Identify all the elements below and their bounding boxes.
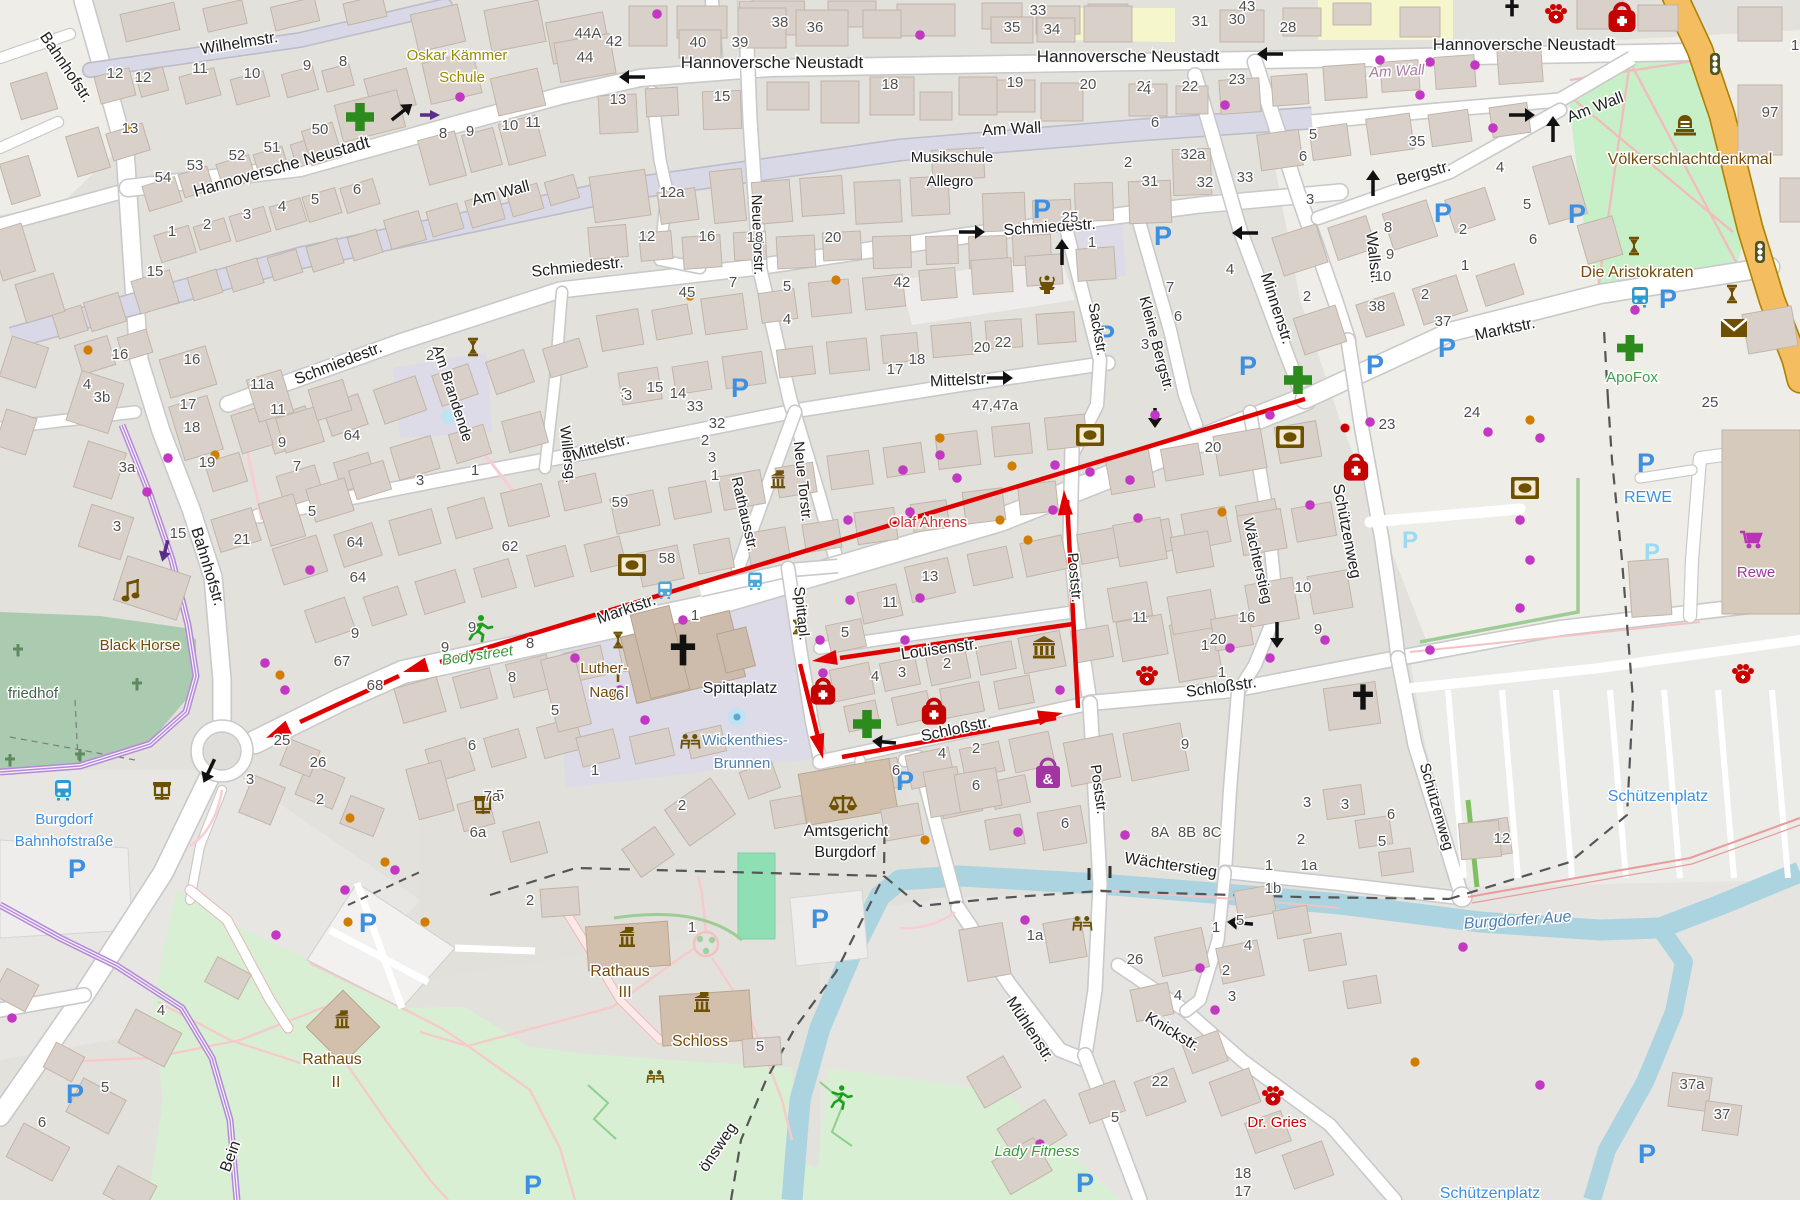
svg-text:1: 1	[1791, 37, 1799, 54]
svg-text:2: 2	[1303, 288, 1311, 305]
svg-text:P: P	[1637, 448, 1655, 478]
svg-text:Dr. Gries: Dr. Gries	[1247, 1114, 1306, 1131]
svg-text:1: 1	[168, 223, 176, 240]
svg-text:20: 20	[1210, 631, 1227, 648]
svg-text:Black Horse: Black Horse	[100, 637, 181, 654]
svg-text:18: 18	[882, 76, 899, 93]
svg-text:11: 11	[1132, 609, 1148, 626]
svg-text:34: 34	[1044, 21, 1061, 38]
svg-text:P: P	[1438, 333, 1456, 363]
svg-text:Hannoversche Neustadt: Hannoversche Neustadt	[681, 53, 864, 72]
svg-text:Wickenthies-: Wickenthies-	[702, 732, 788, 749]
svg-text:2: 2	[701, 432, 709, 449]
svg-text:1: 1	[1265, 857, 1273, 874]
svg-text:9: 9	[466, 123, 474, 140]
svg-text:Luther-: Luther-	[580, 660, 628, 677]
svg-text:40: 40	[690, 34, 707, 51]
svg-text:20: 20	[825, 229, 842, 246]
svg-text:58: 58	[659, 550, 676, 567]
svg-text:35: 35	[1004, 19, 1021, 36]
svg-text:31: 31	[1142, 173, 1159, 190]
svg-text:4: 4	[1143, 81, 1151, 98]
svg-text:5: 5	[101, 1079, 109, 1096]
svg-text:P: P	[811, 904, 829, 934]
svg-text:9: 9	[1314, 621, 1322, 638]
svg-text:12: 12	[107, 65, 124, 82]
svg-text:9: 9	[303, 57, 311, 74]
svg-text:33: 33	[1030, 2, 1047, 19]
svg-text:7: 7	[293, 458, 301, 475]
svg-text:25: 25	[1702, 394, 1719, 411]
svg-text:1: 1	[1201, 637, 1209, 654]
svg-text:2: 2	[1459, 221, 1467, 238]
svg-text:P: P	[731, 373, 749, 403]
svg-text:18: 18	[1235, 1165, 1252, 1182]
svg-text:Hannoversche Neustadt: Hannoversche Neustadt	[1037, 47, 1220, 66]
svg-text:1: 1	[1461, 257, 1469, 274]
svg-text:4: 4	[938, 745, 946, 762]
svg-text:Mittelstr.: Mittelstr.	[930, 370, 990, 390]
svg-text:Am Wall: Am Wall	[1368, 62, 1426, 82]
svg-text:9: 9	[441, 639, 449, 656]
svg-text:1a: 1a	[1301, 857, 1318, 874]
svg-text:P: P	[1434, 198, 1452, 228]
svg-text:2: 2	[678, 797, 686, 814]
svg-text:22: 22	[1152, 1073, 1169, 1090]
svg-text:8: 8	[339, 53, 347, 70]
svg-text:6: 6	[468, 737, 476, 754]
svg-text:Schule: Schule	[439, 69, 485, 86]
svg-text:8: 8	[508, 669, 516, 686]
svg-text:3: 3	[1341, 796, 1349, 813]
svg-text:7: 7	[1166, 279, 1174, 296]
svg-text:97: 97	[1762, 104, 1779, 121]
svg-text:17: 17	[180, 396, 197, 413]
svg-text:18: 18	[184, 419, 201, 436]
svg-text:28: 28	[1280, 19, 1297, 36]
svg-text:Völkerschlachtdenkmal: Völkerschlachtdenkmal	[1608, 151, 1773, 168]
svg-text:Rewe: Rewe	[1737, 564, 1775, 581]
svg-text:33: 33	[687, 398, 704, 415]
svg-text:Lady Fitness: Lady Fitness	[994, 1143, 1080, 1160]
svg-text:50: 50	[312, 121, 329, 138]
svg-text:17: 17	[887, 361, 904, 378]
svg-text:13: 13	[922, 568, 939, 585]
svg-text:3: 3	[243, 206, 251, 223]
svg-text:11a: 11a	[250, 376, 275, 393]
svg-text:36: 36	[807, 19, 824, 36]
svg-text:20: 20	[1080, 76, 1097, 93]
svg-text:6: 6	[1529, 231, 1537, 248]
svg-text:64: 64	[347, 534, 364, 551]
svg-text:6: 6	[616, 687, 624, 704]
svg-text:2: 2	[1124, 154, 1132, 171]
svg-text:5: 5	[311, 191, 319, 208]
svg-text:20: 20	[974, 339, 991, 356]
svg-text:Olaf Ahrens: Olaf Ahrens	[889, 514, 967, 531]
svg-text:P: P	[1644, 539, 1660, 566]
svg-text:&: &	[1043, 771, 1054, 788]
svg-text:19: 19	[1007, 74, 1024, 91]
svg-text:2: 2	[526, 892, 534, 909]
svg-text:10: 10	[1375, 268, 1392, 285]
svg-text:ApoFox: ApoFox	[1606, 369, 1658, 386]
svg-text:15: 15	[714, 88, 731, 105]
svg-text:44: 44	[577, 49, 594, 66]
svg-text:42: 42	[606, 33, 623, 50]
svg-text:6: 6	[1061, 815, 1069, 832]
svg-text:52: 52	[229, 147, 246, 164]
svg-text:67: 67	[334, 653, 351, 670]
svg-text:19: 19	[199, 454, 216, 471]
svg-text:16: 16	[184, 351, 201, 368]
svg-text:8: 8	[439, 125, 447, 142]
svg-text:35: 35	[1409, 133, 1426, 150]
svg-text:Burgdorf: Burgdorf	[814, 844, 876, 861]
svg-text:1: 1	[1218, 664, 1226, 681]
svg-text:10: 10	[244, 65, 261, 82]
svg-text:8C: 8C	[1202, 824, 1221, 841]
svg-text:6: 6	[1151, 114, 1159, 131]
svg-text:15: 15	[147, 263, 164, 280]
svg-text:6: 6	[1387, 806, 1395, 823]
svg-text:P: P	[524, 1170, 542, 1200]
svg-text:11: 11	[882, 594, 898, 611]
svg-text:62: 62	[502, 538, 519, 555]
svg-text:25: 25	[274, 732, 291, 749]
svg-text:1: 1	[691, 607, 699, 624]
svg-text:P: P	[1239, 351, 1257, 381]
svg-text:4: 4	[278, 198, 286, 215]
svg-text:38: 38	[1369, 298, 1386, 315]
svg-text:2: 2	[1222, 962, 1230, 979]
svg-text:3a: 3a	[119, 459, 136, 476]
svg-text:37: 37	[1435, 313, 1452, 330]
svg-text:5: 5	[551, 702, 559, 719]
svg-text:5: 5	[756, 1038, 764, 1055]
svg-text:Burgdorf: Burgdorf	[35, 811, 93, 828]
svg-text:1: 1	[1088, 234, 1096, 251]
svg-text:friedhof: friedhof	[8, 685, 59, 702]
svg-text:4: 4	[783, 311, 791, 328]
svg-text:5: 5	[308, 503, 316, 520]
svg-text:8: 8	[526, 635, 534, 652]
svg-text:43: 43	[1239, 0, 1256, 15]
svg-text:Am Wall: Am Wall	[982, 119, 1042, 139]
svg-text:8A: 8A	[1151, 824, 1169, 841]
svg-text:26: 26	[310, 754, 327, 771]
svg-text:9: 9	[278, 434, 286, 451]
svg-text:3: 3	[113, 518, 121, 535]
svg-text:45: 45	[679, 284, 696, 301]
svg-text:59: 59	[612, 494, 629, 511]
svg-text:P: P	[68, 854, 86, 884]
svg-text:64: 64	[350, 569, 367, 586]
svg-text:3: 3	[1141, 336, 1149, 353]
svg-text:III: III	[618, 984, 631, 1001]
svg-text:2: 2	[316, 791, 324, 808]
svg-text:1b: 1b	[1265, 880, 1282, 897]
svg-text:54: 54	[155, 169, 172, 186]
svg-text:3b: 3b	[94, 389, 111, 406]
svg-text:4: 4	[157, 1002, 165, 1019]
svg-text:39: 39	[732, 34, 749, 51]
svg-text:Rathaus: Rathaus	[302, 1051, 362, 1068]
svg-text:10: 10	[1295, 579, 1312, 596]
svg-text:9: 9	[351, 625, 359, 642]
svg-text:2: 2	[1297, 831, 1305, 848]
svg-text:33: 33	[1237, 169, 1254, 186]
svg-text:P: P	[66, 1079, 84, 1109]
svg-text:1: 1	[471, 462, 479, 479]
svg-text:P: P	[1366, 350, 1384, 380]
svg-text:53: 53	[187, 157, 204, 174]
svg-text:II: II	[332, 1074, 341, 1091]
svg-text:6: 6	[1299, 148, 1307, 165]
svg-text:23: 23	[1229, 71, 1246, 88]
svg-text:3: 3	[898, 664, 906, 681]
svg-text:3: 3	[708, 449, 716, 466]
svg-text:5: 5	[1111, 1109, 1119, 1126]
svg-text:17: 17	[1235, 1183, 1252, 1200]
svg-text:6: 6	[38, 1114, 46, 1131]
svg-text:18: 18	[747, 229, 764, 246]
svg-text:4: 4	[1496, 159, 1504, 176]
svg-text:38: 38	[772, 14, 789, 31]
svg-text:5: 5	[1523, 196, 1531, 213]
svg-text:31: 31	[1192, 13, 1209, 30]
svg-text:2: 2	[972, 740, 980, 757]
svg-text:REWE: REWE	[1624, 489, 1672, 506]
svg-text:5: 5	[841, 624, 849, 641]
svg-text:Schloss: Schloss	[672, 1033, 728, 1050]
svg-text:Bahnhofstraße: Bahnhofstraße	[15, 833, 113, 850]
svg-text:Amtsgericht: Amtsgericht	[804, 823, 889, 840]
svg-text:6a: 6a	[470, 824, 487, 841]
svg-text:1: 1	[591, 762, 599, 779]
svg-text:26: 26	[1127, 951, 1144, 968]
svg-text:2: 2	[1421, 286, 1429, 303]
svg-text:8B: 8B	[1178, 824, 1196, 841]
svg-text:P: P	[1638, 1139, 1656, 1169]
svg-text:1a: 1a	[1027, 927, 1044, 944]
svg-text:Hannoversche Neustadt: Hannoversche Neustadt	[1433, 35, 1616, 54]
svg-text:8: 8	[1384, 219, 1392, 236]
svg-text:Schützenplatz: Schützenplatz	[1608, 788, 1709, 805]
svg-text:P: P	[1659, 284, 1677, 314]
svg-text:Musikschule: Musikschule	[911, 149, 994, 166]
svg-text:4: 4	[1244, 937, 1252, 954]
svg-text:3: 3	[416, 472, 424, 489]
svg-text:18: 18	[909, 351, 926, 368]
svg-text:12: 12	[135, 69, 152, 86]
svg-text:13: 13	[122, 120, 139, 137]
svg-text:9: 9	[468, 619, 476, 636]
svg-text:7: 7	[729, 274, 737, 291]
svg-text:22: 22	[995, 334, 1012, 351]
svg-text:6: 6	[353, 181, 361, 198]
svg-text:23: 23	[1379, 416, 1396, 433]
svg-text:68: 68	[367, 677, 384, 694]
svg-text:4: 4	[83, 376, 91, 393]
svg-text:14: 14	[670, 385, 687, 402]
svg-text:37a: 37a	[1679, 1076, 1705, 1093]
svg-text:P: P	[359, 908, 377, 938]
svg-text:11: 11	[525, 114, 541, 131]
svg-text:2: 2	[203, 216, 211, 233]
svg-text:3: 3	[246, 771, 254, 788]
svg-text:11: 11	[192, 60, 208, 77]
svg-text:5: 5	[1309, 126, 1317, 143]
svg-text:32a: 32a	[1180, 146, 1206, 163]
svg-text:5: 5	[1236, 912, 1244, 929]
svg-text:Die Aristokraten: Die Aristokraten	[1581, 264, 1694, 281]
svg-text:10: 10	[502, 117, 519, 134]
svg-text:15: 15	[647, 379, 664, 396]
svg-text:1: 1	[688, 919, 696, 936]
svg-text:4: 4	[871, 668, 879, 685]
svg-text:Rathaus: Rathaus	[590, 963, 650, 980]
svg-text:P: P	[1076, 1168, 1094, 1198]
svg-text:6: 6	[892, 762, 900, 779]
svg-text:Schützenplatz: Schützenplatz	[1440, 1185, 1541, 1200]
svg-text:Allegro: Allegro	[927, 173, 974, 190]
svg-text:Oskar Kämmer: Oskar Kämmer	[407, 47, 508, 64]
svg-text:37: 37	[1714, 1106, 1731, 1123]
svg-text:4: 4	[1226, 261, 1234, 278]
svg-text:15: 15	[170, 525, 187, 542]
svg-text:7a: 7a	[484, 788, 501, 805]
svg-text:32: 32	[709, 415, 726, 432]
svg-text:51: 51	[264, 139, 281, 156]
svg-text:32: 32	[1197, 174, 1214, 191]
svg-text:4: 4	[1174, 987, 1182, 1004]
svg-text:47,47a: 47,47a	[972, 397, 1019, 414]
svg-text:16: 16	[112, 346, 129, 363]
svg-text:3: 3	[1228, 988, 1236, 1005]
svg-text:2: 2	[943, 655, 951, 672]
svg-text:16: 16	[699, 228, 716, 245]
svg-text:16: 16	[1239, 609, 1256, 626]
svg-text:12: 12	[1494, 830, 1511, 847]
svg-text:P: P	[1154, 221, 1172, 251]
svg-text:6: 6	[972, 777, 980, 794]
svg-text:1: 1	[711, 467, 719, 484]
svg-text:11: 11	[270, 401, 286, 418]
svg-text:3: 3	[1306, 191, 1314, 208]
svg-text:64: 64	[344, 427, 361, 444]
svg-text:44A: 44A	[575, 25, 602, 42]
svg-text:42: 42	[894, 274, 911, 291]
svg-text:Brunnen: Brunnen	[714, 755, 771, 772]
svg-text:25: 25	[1062, 209, 1079, 226]
svg-text:P: P	[1568, 199, 1586, 229]
svg-text:22: 22	[1182, 78, 1199, 95]
svg-text:20: 20	[1205, 439, 1222, 456]
svg-text:9: 9	[1386, 246, 1394, 263]
svg-text:13: 13	[610, 91, 627, 108]
svg-text:12: 12	[639, 228, 656, 245]
svg-text:P: P	[1402, 527, 1418, 554]
svg-text:2: 2	[426, 347, 434, 364]
svg-text:1: 1	[1212, 919, 1220, 936]
svg-text:21: 21	[234, 531, 251, 548]
svg-text:12a: 12a	[659, 184, 685, 201]
svg-text:Spittaplatz: Spittaplatz	[703, 680, 778, 697]
svg-text:24: 24	[1464, 404, 1481, 421]
svg-text:3: 3	[624, 387, 632, 404]
svg-text:5: 5	[783, 278, 791, 295]
svg-text:6: 6	[1174, 308, 1182, 325]
svg-text:3: 3	[1303, 794, 1311, 811]
svg-text:5: 5	[1378, 833, 1386, 850]
svg-text:9: 9	[1181, 736, 1189, 753]
